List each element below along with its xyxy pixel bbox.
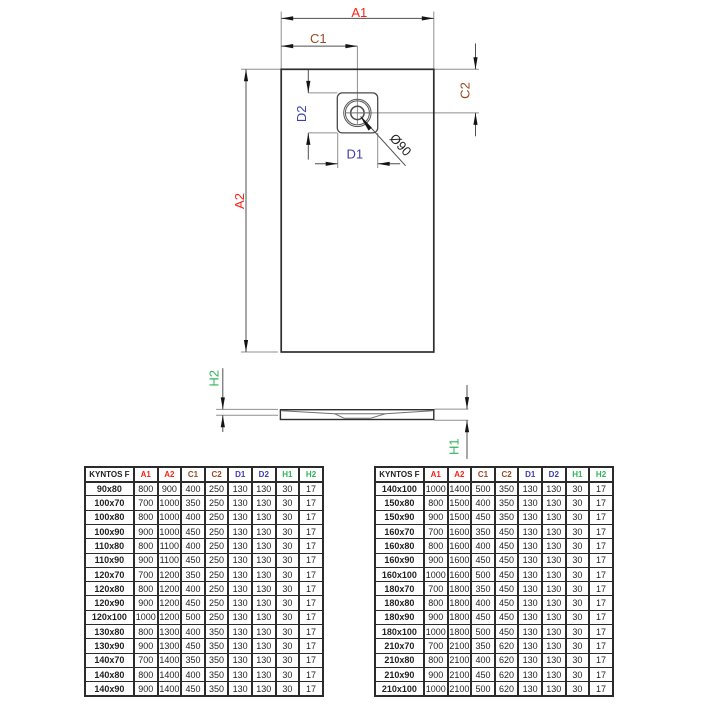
svg-text:C2: C2 xyxy=(457,82,472,99)
svg-text:C1: C1 xyxy=(310,31,327,46)
svg-text:A1: A1 xyxy=(351,5,367,20)
svg-text:H2: H2 xyxy=(206,370,221,387)
svg-text:D1: D1 xyxy=(346,147,363,162)
svg-text:Ø90: Ø90 xyxy=(387,131,415,159)
svg-text:H1: H1 xyxy=(446,438,461,455)
svg-text:D2: D2 xyxy=(294,105,309,122)
svg-text:A2: A2 xyxy=(232,193,247,209)
